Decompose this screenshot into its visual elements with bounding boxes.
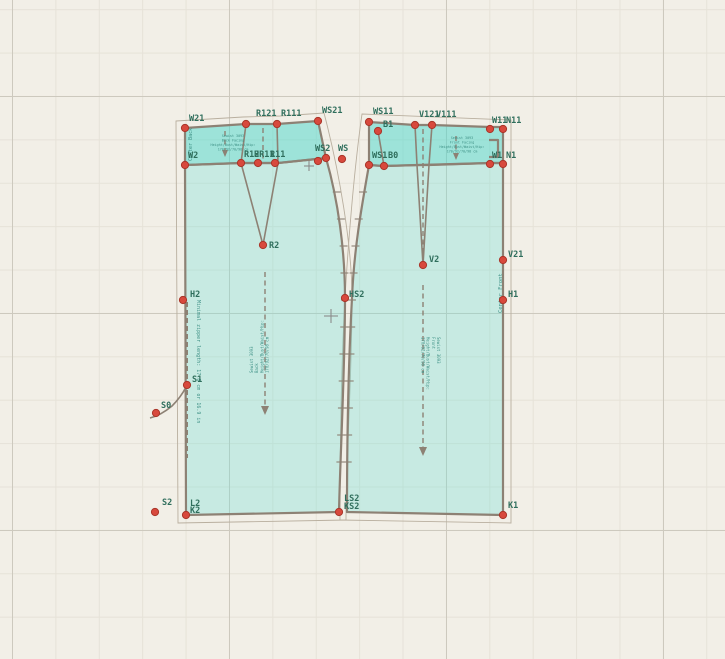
point-label-WS2[interactable]: WS2 [315,144,330,154]
point-label-S2[interactable]: S2 [162,498,172,508]
front-facing-text-line: Height/Bust/Waist/Hip: [440,145,485,149]
pattern-point-L2[interactable] [182,511,189,518]
pattern-point-W1[interactable] [486,160,493,167]
pattern-point-R121[interactable] [242,120,249,127]
point-label-W1[interactable]: W1 [492,151,502,161]
point-label-V21[interactable]: V21 [508,250,523,260]
pattern-point-WS1[interactable] [365,161,372,168]
back-info-line: 170/92/70/98 cm [265,336,270,373]
pattern-point-HW2[interactable] [314,157,321,164]
point-label-B0[interactable]: B0 [388,151,398,161]
pattern-point-HR11[interactable] [271,159,278,166]
point-label-R121[interactable]: R121 [256,109,276,119]
point-label-S1[interactable]: S1 [192,375,202,385]
pattern-point-H1[interactable] [499,296,506,303]
pattern-point-LS2[interactable] [335,508,342,515]
pattern-canvas[interactable]: Sewist 3093 Back Facing Height/Bust/Wais… [0,0,725,659]
point-label-HR11[interactable]: HR11 [254,150,274,160]
point-label-WS[interactable]: WS [338,144,348,154]
point-label-S0[interactable]: S0 [161,401,171,411]
back-facing-text-line: Height/Bust/Waist/Hip: [211,143,256,147]
front-facing-text-line: Sewist 3093 [451,136,473,140]
pattern-point-S0[interactable] [152,409,159,416]
front-info-line: 170/92/70/98 cm [420,337,425,374]
pattern-point-R11[interactable] [254,159,261,166]
back-facing-text-line: Sewist 3093 [222,134,244,138]
point-label-V2[interactable]: V2 [429,255,439,265]
front-facing-text-line: Front Facing [450,141,475,145]
pattern-point-V121[interactable] [411,121,418,128]
back-facing-text-line: Back Facing [222,139,244,143]
point-label-W2[interactable]: W2 [188,151,198,161]
pattern-point-W21[interactable] [181,124,188,131]
point-label-HS2[interactable]: HS2 [349,290,364,300]
point-label-WS21[interactable]: WS21 [322,106,342,116]
pattern-point-V2[interactable] [419,261,426,268]
point-label-H2[interactable]: H2 [190,290,200,300]
pattern-point-R111[interactable] [273,120,280,127]
point-label-R111[interactable]: R111 [281,109,301,119]
pattern-point-WS11[interactable] [365,118,372,125]
point-label-N11[interactable]: N11 [506,116,521,126]
pattern-point-N1[interactable] [499,160,506,167]
pattern-point-HS2[interactable] [341,294,348,301]
point-label-V111[interactable]: V111 [436,110,456,120]
pattern-point-W11[interactable] [486,125,493,132]
pattern-point-WS2[interactable] [322,154,329,161]
point-label-H1[interactable]: H1 [508,290,518,300]
pattern-point-N11[interactable] [499,125,506,132]
pattern-point-H2[interactable] [179,296,186,303]
point-label-WS11[interactable]: WS11 [373,107,393,117]
point-label-K2[interactable]: K2 [190,506,200,516]
point-label-K1[interactable]: K1 [508,501,518,511]
pattern-point-B0[interactable] [380,162,387,169]
pattern-point-R2[interactable] [259,241,266,248]
pattern-point-WS21[interactable] [314,117,321,124]
pattern-point-S2[interactable] [151,508,158,515]
zipper-length-note: Minimal zipper length: 17.8 cm or 16.9 i… [195,300,201,423]
center-front-label: Center Front [498,273,504,313]
pattern-point-WS[interactable] [338,155,345,162]
point-label-R2[interactable]: R2 [269,241,279,251]
pieces-layer [185,121,503,515]
pattern-point-R12[interactable] [237,159,244,166]
point-label-W21[interactable]: W21 [189,114,204,124]
pattern-point-S1[interactable] [183,381,190,388]
pattern-point-B1[interactable] [374,127,381,134]
pattern-point-V111[interactable] [428,121,435,128]
point-label-KS2[interactable]: KS2 [344,502,359,512]
front-facing-text-line: 170/92/70/98 cm [447,150,478,154]
pattern-point-V21[interactable] [499,256,506,263]
pattern-point-K1[interactable] [499,511,506,518]
pattern-point-W2[interactable] [181,161,188,168]
point-label-N1[interactable]: N1 [506,151,516,161]
point-label-B1[interactable]: B1 [383,120,393,130]
point-label-WS1[interactable]: WS1 [372,151,387,161]
